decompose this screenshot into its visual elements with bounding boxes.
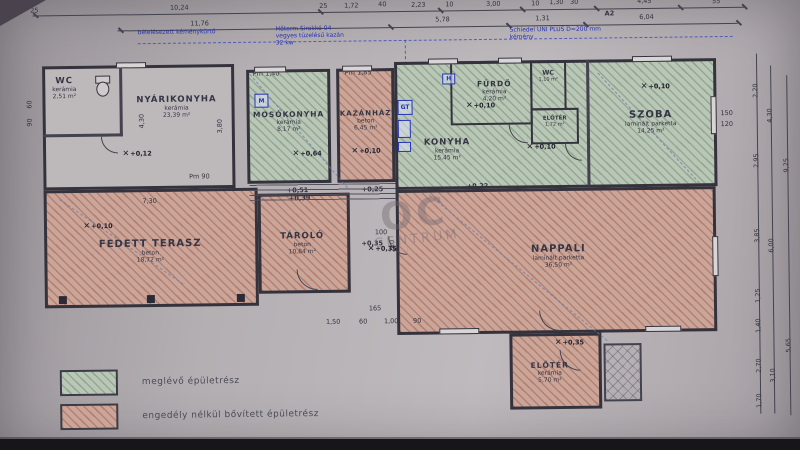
elevation-marker-icon: ✕	[641, 81, 648, 90]
dim-label: 2,20	[751, 83, 759, 98]
stove-icon: GT	[397, 100, 412, 115]
photo-corner-shadow	[0, 0, 46, 26]
elevation-kazanhaz: ✕+0,10	[351, 146, 380, 155]
terasz-post	[237, 294, 245, 302]
room-label-mosokonyha: MOSÓKONYHA kerámia 8,17 m²	[253, 109, 325, 133]
elevation-nyarikonyha: ✕+0,12	[122, 149, 151, 158]
legend-label-existing: meglévő épületrész	[142, 376, 240, 387]
terasz-post	[147, 295, 155, 303]
window	[116, 62, 146, 68]
room-label-nappali: NAPPALI laminált parketta 36,50 m²	[531, 243, 586, 269]
toilet-icon	[94, 76, 110, 96]
window	[710, 96, 716, 134]
room-label-eloter-small: ELŐTÉR 1,72 m²	[543, 115, 567, 128]
elevation-eloter: ✕+0,35	[555, 337, 584, 346]
dim-line-top1	[32, 7, 744, 17]
dim-label: 2,95	[752, 153, 760, 168]
dim-label: 11,76	[190, 19, 209, 27]
legend-row-existing: meglévő épületrész	[60, 367, 319, 396]
floor-plan-drawing: 25 10,24 25 1,72 40 2,23 10 3,00 10 1,30…	[0, 0, 800, 455]
terasz-post	[59, 296, 67, 304]
elevation-tarolo: ✕+0,35	[368, 244, 397, 253]
dim-label: 40	[378, 0, 386, 8]
dim-label: 10,24	[170, 4, 189, 12]
elevation-mosokonyha: ✕+0,64	[292, 148, 321, 157]
porch-steps	[603, 343, 642, 401]
room-label-furdo: FÜRDŐ kerámia 4,20 m²	[477, 79, 512, 102]
dim-label: 4,45	[637, 0, 652, 5]
room-label-konyha: KONYHA kerámia 15,45 m²	[424, 137, 471, 162]
dim-label: 60	[359, 317, 367, 325]
window	[632, 56, 672, 62]
dim-label: 10	[445, 0, 453, 8]
window	[645, 326, 681, 332]
dim-label: 6,04	[639, 13, 654, 21]
elevation-furdo: ✕+0,10	[466, 100, 495, 109]
dim-label: Pm 90	[189, 172, 210, 180]
dim-label: 1,25	[754, 288, 762, 303]
window	[439, 328, 479, 334]
room-label-wc: WC kerámia 2,51 m²	[52, 76, 77, 100]
elevation-szoba: ✕+0,10	[641, 81, 670, 90]
window	[254, 66, 286, 72]
kitchen-fixture-icon	[398, 142, 411, 152]
dim-label: 1,50	[326, 318, 341, 326]
room-label-eloter: ELŐTÉR kerámia 5,70 m²	[531, 360, 570, 383]
dim-label: 3,00	[486, 0, 501, 8]
boiler-note: Hőterm Sirokkó 04 vegyes tüzelésű kazán …	[276, 25, 344, 47]
washing-machine-icon: M	[254, 94, 268, 108]
step-elevation: +0,22	[467, 182, 489, 190]
dim-label: 3,10	[769, 368, 777, 383]
room-label-nyarikonyha: NYÁRIKONYHA kerámia 23,39 m²	[136, 94, 216, 119]
dim-label: 1,40	[754, 318, 762, 333]
dim-label: 3,80	[216, 119, 224, 134]
elevation-marker-icon: ✕	[466, 101, 473, 110]
dim-label: 120	[721, 120, 734, 128]
dim-label: 6,00	[767, 238, 775, 253]
dim-label: 55	[712, 0, 720, 5]
elevation-marker-icon: ✕	[368, 244, 375, 253]
legend: meglévő épületrész engedély nélkül bővít…	[60, 367, 319, 438]
dim-label: 30	[570, 0, 578, 6]
dim-label: 90	[26, 118, 34, 126]
legend-row-extension: engedély nélkül bővített épületrész	[60, 401, 319, 430]
elevation-marker-icon: ✕	[351, 146, 358, 155]
dim-label: 9,25	[782, 158, 790, 173]
window	[342, 65, 372, 71]
elevation-terasz: ✕+0,10	[83, 221, 112, 230]
dim-label: 60	[25, 100, 33, 108]
dim-label: 25	[319, 2, 327, 10]
steps-middle	[249, 183, 395, 201]
room-label-wc2: WC 1,10 m²	[538, 69, 558, 84]
room-block-wc2	[530, 60, 567, 110]
dim-label: 10	[531, 0, 539, 7]
legend-swatch-existing	[60, 369, 118, 396]
legend-swatch-extension	[60, 403, 118, 430]
room-label-terasz: FEDETT TERASZ beton 18,72 m²	[99, 238, 202, 264]
dim-label: 1,70	[755, 393, 763, 408]
chimney-dashed-line	[138, 36, 733, 44]
dim-label: 5,78	[435, 15, 450, 23]
room-label-kazanhaz: KAZÁNHÁZ beton 6,45 m²	[340, 109, 392, 132]
dim-label: 165	[369, 304, 382, 312]
room-label-szoba: SZOBA laminált parketta 14,25 m²	[625, 109, 677, 135]
dim-label: 2,70	[755, 358, 763, 373]
window	[428, 58, 458, 64]
window	[712, 236, 718, 276]
dim-label: 1,30	[549, 0, 564, 6]
photo-edge-bar	[0, 439, 800, 450]
dim-label: 5,65	[784, 338, 792, 353]
dim-line-right3	[786, 75, 791, 415]
room-label-tarolo: TÁROLÓ beton 10,84 m²	[280, 231, 324, 256]
chimney-liner-note: bélelésezett kéménykürtő	[138, 28, 216, 36]
dim-label: 90	[413, 317, 421, 325]
elevation-marker-icon: ✕	[555, 338, 562, 347]
dim-label: 1,72	[344, 1, 359, 9]
dim-label: 150	[720, 109, 733, 117]
dim-label: 4,30	[766, 108, 774, 123]
dim-label: 3,85	[753, 228, 761, 243]
elevation-marker-icon: ✕	[526, 142, 533, 151]
dim-label: 2,23	[411, 1, 426, 9]
elevation-konyha: ✕+0,10	[526, 142, 555, 151]
window	[498, 57, 522, 63]
elevation-marker-icon: ✕	[122, 149, 129, 158]
dim-label: 7,30	[142, 197, 157, 205]
kitchen-fixture-icon	[398, 120, 411, 138]
photo-background: 25 10,24 25 1,72 40 2,23 10 3,00 10 1,30…	[0, 0, 800, 450]
dim-label: 100	[375, 228, 388, 236]
dim-label: 1,00	[384, 317, 399, 325]
elevation-marker-icon: ✕	[83, 221, 90, 230]
section-marker-a2: A2	[605, 9, 615, 17]
dim-label: 1,31	[535, 14, 550, 22]
sink-icon: H	[442, 73, 455, 84]
legend-label-extension: engedély nélkül bővített épületrész	[142, 409, 319, 421]
elevation-marker-icon: ✕	[292, 149, 299, 158]
